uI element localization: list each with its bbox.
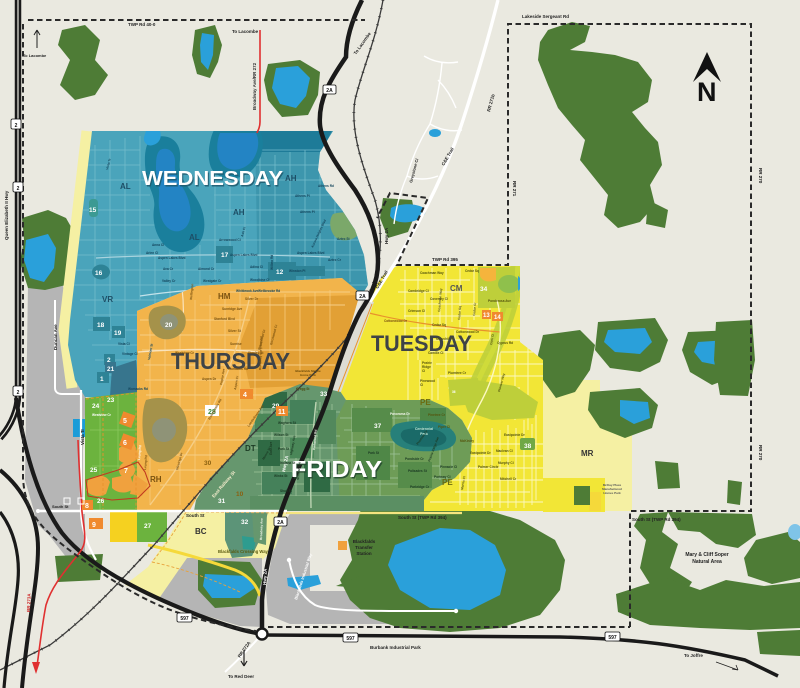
svg-text:Blackfalds Crossing Way: Blackfalds Crossing Way [218, 549, 269, 554]
svg-text:6: 6 [123, 440, 127, 447]
svg-text:7: 7 [124, 468, 128, 475]
svg-text:19: 19 [114, 330, 122, 337]
svg-text:Vintage Cl: Vintage Cl [122, 352, 138, 356]
svg-text:Broadway Ave: Broadway Ave [259, 518, 264, 540]
svg-text:Athens Pl: Athens Pl [300, 210, 315, 214]
svg-text:Womacks Rd: Womacks Rd [128, 387, 148, 391]
svg-text:20: 20 [165, 322, 173, 329]
svg-text:To Joffre: To Joffre [684, 653, 703, 658]
svg-text:4: 4 [243, 392, 247, 399]
svg-text:Westview Cr: Westview Cr [92, 413, 112, 417]
svg-text:Gregg St: Gregg St [296, 387, 310, 391]
svg-text:Cambridge Cl: Cambridge Cl [408, 289, 429, 293]
svg-text:Sunridge Ave: Sunridge Ave [222, 307, 243, 311]
svg-text:Cl: Cl [422, 369, 425, 373]
svg-text:Stanford Blvd: Stanford Blvd [214, 317, 235, 321]
svg-text:Pondside Cr: Pondside Cr [405, 457, 425, 461]
svg-text:Womacks Rd: Womacks Rd [228, 367, 248, 371]
svg-text:South St: South St [186, 513, 205, 518]
svg-text:East Ave: East Ave [269, 442, 273, 455]
svg-text:Eastpointe Dr: Eastpointe Dr [470, 451, 491, 455]
svg-text:Hwy 2A: Hwy 2A [384, 227, 389, 244]
svg-text:RH: RH [150, 475, 162, 484]
svg-text:2: 2 [107, 357, 111, 364]
svg-text:South St (TWP Rd 394): South St (TWP Rd 394) [398, 515, 447, 520]
svg-text:33: 33 [320, 391, 328, 398]
svg-text:To Lacombe: To Lacombe [232, 29, 259, 34]
svg-text:Duncan Ave: Duncan Ave [53, 324, 58, 350]
svg-text:8: 8 [85, 503, 89, 510]
svg-text:Palisades St: Palisades St [408, 469, 428, 473]
svg-text:TWP Rd 395: TWP Rd 395 [432, 257, 458, 262]
svg-text:34: 34 [480, 286, 488, 293]
svg-text:Aspen Lakes Blvd: Aspen Lakes Blvd [297, 251, 325, 255]
svg-text:Silver St: Silver St [228, 329, 242, 333]
svg-text:RR 270: RR 270 [758, 168, 763, 184]
svg-text:2A: 2A [359, 294, 366, 300]
svg-text:Indiana St: Indiana St [280, 461, 296, 465]
svg-text:2A: 2A [277, 520, 284, 526]
svg-text:Sunrise: Sunrise [230, 342, 242, 346]
svg-text:Silver Dr: Silver Dr [245, 297, 259, 301]
svg-text:Coachman Way: Coachman Way [420, 271, 444, 275]
svg-text:597: 597 [608, 635, 617, 641]
svg-text:Anna Cl: Anna Cl [152, 243, 164, 247]
svg-text:Burbank Industrial Park: Burbank Industrial Park [370, 645, 421, 650]
svg-text:17: 17 [221, 252, 229, 259]
svg-text:Ponderosa Ave: Ponderosa Ave [488, 299, 511, 303]
svg-text:RR 273A: RR 273A [26, 593, 32, 612]
svg-text:Palmer Circle: Palmer Circle [478, 465, 499, 469]
svg-text:DT: DT [245, 444, 256, 453]
svg-text:McKinley: McKinley [460, 439, 474, 443]
svg-text:23: 23 [107, 397, 115, 404]
svg-text:Shull St: Shull St [280, 489, 293, 493]
svg-text:Almond Cr: Almond Cr [198, 267, 215, 271]
svg-text:Piper Cl: Piper Cl [438, 425, 450, 429]
svg-text:Camille Cl: Camille Cl [428, 351, 444, 355]
svg-text:Crimson Cl: Crimson Cl [408, 309, 425, 313]
svg-text:Lakeside Sergeant Rd: Lakeside Sergeant Rd [522, 14, 569, 19]
svg-text:BC: BC [195, 527, 207, 536]
svg-text:Cyprus Rd: Cyprus Rd [497, 341, 513, 345]
svg-text:Woodbine Cl: Woodbine Cl [250, 278, 270, 282]
svg-text:Aspen Lakes Blvd: Aspen Lakes Blvd [158, 256, 186, 260]
svg-text:PE: PE [442, 478, 453, 487]
svg-text:To Red Deer: To Red Deer [228, 674, 254, 679]
svg-text:Blackfalds: Blackfalds [353, 539, 376, 544]
svg-text:14: 14 [494, 315, 501, 321]
svg-text:597: 597 [346, 636, 355, 642]
svg-text:2: 2 [17, 186, 20, 192]
svg-text:Cottonwood Dr: Cottonwood Dr [384, 319, 408, 323]
svg-text:Athens Pl: Athens Pl [295, 194, 310, 198]
svg-text:AL: AL [120, 182, 131, 191]
svg-text:11: 11 [278, 409, 286, 416]
svg-text:Mary & Cliff Soper: Mary & Cliff Soper [685, 552, 728, 558]
svg-text:5: 5 [123, 418, 127, 425]
svg-text:37: 37 [374, 423, 382, 430]
svg-text:32: 32 [241, 519, 249, 526]
svg-text:Pinetree Cr: Pinetree Cr [428, 413, 446, 417]
svg-text:Athens Rd: Athens Rd [318, 184, 334, 188]
svg-text:Eastpointe Dr: Eastpointe Dr [504, 433, 525, 437]
svg-text:Churchill Pl: Churchill Pl [436, 337, 454, 341]
svg-text:RR 271: RR 271 [512, 181, 517, 197]
svg-text:MR: MR [581, 449, 594, 458]
svg-text:Cottonwood Dr: Cottonwood Dr [456, 330, 480, 334]
svg-text:WEDNESDAY: WEDNESDAY [142, 167, 283, 190]
svg-text:15: 15 [89, 207, 97, 214]
svg-text:Winks St: Winks St [274, 474, 288, 478]
svg-text:10: 10 [236, 491, 244, 498]
svg-text:TWP Rd 40-0: TWP Rd 40-0 [128, 22, 156, 27]
svg-text:24: 24 [92, 403, 100, 410]
svg-text:1: 1 [100, 376, 104, 383]
svg-text:Plumtree Cr: Plumtree Cr [448, 371, 467, 375]
svg-text:Arrowwood Cl: Arrowwood Cl [219, 238, 241, 242]
svg-text:36: 36 [452, 390, 456, 394]
svg-text:AH: AH [285, 174, 297, 183]
svg-text:31: 31 [218, 498, 226, 505]
svg-text:Valley Cr: Valley Cr [162, 279, 176, 283]
svg-text:AL: AL [189, 233, 200, 242]
svg-text:Pinnacle Cl: Pinnacle Cl [440, 465, 457, 469]
svg-text:Aspen Lakes Blvd: Aspen Lakes Blvd [230, 253, 258, 257]
svg-text:Westview Cr: Westview Cr [175, 351, 195, 355]
svg-text:25: 25 [90, 467, 98, 474]
svg-text:Murphy Cl: Murphy Cl [498, 461, 514, 465]
svg-text:To Lacombe: To Lacombe [23, 53, 47, 58]
svg-text:Cedar Sq: Cedar Sq [465, 269, 479, 273]
svg-text:Cedar Sq: Cedar Sq [432, 323, 446, 327]
svg-text:Park St: Park St [368, 451, 380, 455]
svg-text:Aztec Cr: Aztec Cr [328, 258, 342, 262]
svg-text:Winston Pl: Winston Pl [289, 269, 306, 273]
svg-text:16: 16 [95, 270, 103, 277]
svg-text:Hwy 2A: Hwy 2A [262, 568, 268, 585]
svg-text:CM: CM [450, 284, 463, 293]
svg-text:PE: PE [420, 398, 431, 407]
svg-text:Aspen Dr: Aspen Dr [202, 377, 217, 381]
svg-text:HM: HM [218, 292, 231, 301]
svg-text:Stanley St: Stanley St [248, 351, 264, 355]
svg-text:Aztec St: Aztec St [337, 237, 351, 241]
svg-text:Willow Rd: Willow Rd [270, 255, 274, 270]
svg-text:Station: Station [356, 551, 372, 556]
svg-text:Transfer: Transfer [355, 545, 373, 550]
svg-text:RR 270: RR 270 [758, 445, 763, 461]
svg-text:Wilson St: Wilson St [274, 433, 289, 437]
svg-text:597: 597 [180, 616, 189, 622]
svg-text:13: 13 [483, 313, 490, 319]
svg-text:27: 27 [144, 523, 152, 530]
svg-text:Homes Park: Homes Park [603, 491, 621, 495]
svg-text:2: 2 [17, 390, 20, 396]
svg-text:Westgate Cr: Westgate Cr [203, 279, 222, 283]
svg-text:Natural Area: Natural Area [692, 559, 722, 565]
svg-text:Arlen Cl: Arlen Cl [146, 251, 158, 255]
svg-text:Cl: Cl [420, 383, 423, 387]
svg-text:18: 18 [97, 322, 105, 329]
svg-text:VR: VR [102, 295, 113, 304]
svg-text:21: 21 [107, 366, 115, 373]
svg-text:2A: 2A [326, 88, 333, 94]
svg-text:FRIDAY: FRIDAY [291, 456, 382, 482]
svg-text:Mitchell Cr: Mitchell Cr [500, 477, 517, 481]
svg-text:38: 38 [524, 443, 532, 450]
svg-text:Maclean Cl: Maclean Cl [496, 449, 513, 453]
svg-text:Whitbrook Ave: Whitbrook Ave [236, 289, 258, 293]
svg-text:26: 26 [97, 498, 105, 505]
svg-text:Vista Cl: Vista Cl [118, 342, 130, 346]
svg-text:Parkridge Cr: Parkridge Cr [410, 485, 430, 489]
svg-text:South St: South St [52, 504, 69, 509]
svg-text:Portway Cl: Portway Cl [434, 475, 451, 479]
svg-text:Wellbrooke Rd: Wellbrooke Rd [258, 289, 280, 293]
svg-text:Queen Elizabeth II Hwy: Queen Elizabeth II Hwy [4, 190, 9, 240]
svg-text:Home Park: Home Park [300, 373, 316, 377]
svg-text:Vista Tr: Vista Tr [80, 429, 85, 445]
svg-text:TUESDAY: TUESDAY [371, 331, 472, 356]
svg-text:N: N [697, 77, 717, 107]
svg-text:AH: AH [233, 208, 245, 217]
svg-text:2: 2 [15, 123, 18, 129]
svg-text:Waghorn St: Waghorn St [278, 421, 297, 425]
svg-text:12: 12 [276, 269, 284, 276]
svg-text:Broadway Ave/RR 272: Broadway Ave/RR 272 [252, 62, 257, 110]
svg-text:South St (TWP Rd 394): South St (TWP Rd 394) [632, 517, 681, 522]
svg-text:Park St: Park St [278, 447, 290, 451]
svg-text:Panorama Dr: Panorama Dr [390, 412, 411, 416]
svg-text:Ava Cr: Ava Cr [163, 267, 174, 271]
svg-text:9: 9 [92, 522, 96, 529]
svg-text:Adina Cl: Adina Cl [250, 265, 263, 269]
svg-text:30: 30 [204, 460, 212, 467]
